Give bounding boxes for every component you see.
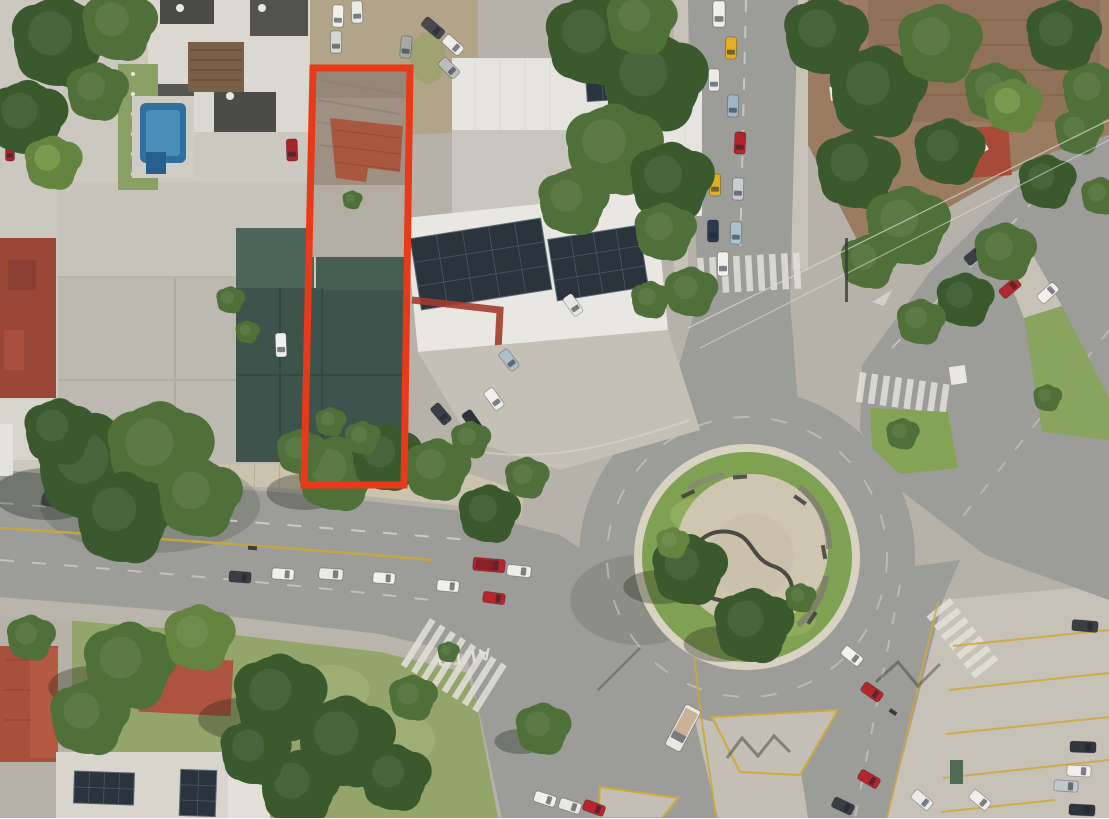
motorcycle: [248, 546, 257, 551]
car: [1069, 804, 1096, 816]
tree-highlight: [172, 471, 210, 509]
tree-highlight: [618, 0, 650, 32]
van-windshield: [715, 16, 724, 22]
pickup-truck-body: [319, 568, 344, 581]
tree-highlight: [176, 616, 208, 648]
tree-highlight: [77, 72, 105, 100]
car-windshield: [332, 44, 340, 49]
swimming-pool-inner: [146, 110, 180, 156]
car-windshield: [284, 570, 289, 578]
pickup-truck-windshield: [719, 266, 727, 271]
car: [286, 139, 298, 161]
car: [730, 222, 742, 244]
pickup-truck: [319, 568, 344, 581]
teal-court-lot: [316, 252, 408, 290]
tree-highlight: [562, 9, 606, 53]
car: [734, 132, 746, 155]
aerial-photo-svg: ALTO: [0, 0, 1109, 818]
tree-highlight: [15, 623, 37, 645]
tree-highlight: [926, 130, 958, 162]
car-body: [286, 139, 298, 161]
taxi-body: [725, 37, 737, 59]
solar-array-house: [73, 771, 134, 805]
car-windshield: [334, 18, 342, 23]
car-body: [400, 36, 413, 59]
tree-highlight: [95, 2, 129, 36]
car-windshield: [7, 153, 13, 157]
car: [708, 220, 719, 242]
grass-patch: [410, 32, 446, 84]
pickup-truck: [718, 252, 729, 276]
car-windshield: [449, 582, 455, 590]
car: [1072, 619, 1099, 632]
car-body: [732, 178, 744, 200]
tree-highlight: [351, 427, 367, 443]
car-body: [1069, 804, 1096, 816]
tree-highlight: [320, 412, 334, 426]
car: [727, 95, 739, 117]
car-windshield: [710, 82, 718, 87]
car: [709, 69, 720, 91]
palm-tree-highlight: [994, 88, 1020, 114]
tree-highlight: [92, 487, 136, 531]
island-shrub-highlight: [790, 588, 804, 602]
roof-unit: [160, 0, 214, 24]
car-body: [1072, 619, 1099, 632]
tree-highlight: [638, 287, 656, 305]
trash-bin: [950, 760, 963, 784]
tree-highlight: [125, 418, 173, 466]
car-body: [730, 222, 742, 244]
car: [1054, 780, 1079, 793]
teal-court-upper: [236, 228, 314, 288]
car-body: [708, 220, 719, 242]
car: [732, 178, 744, 200]
van-body: [506, 564, 531, 577]
car-windshield: [1068, 782, 1074, 790]
car: [275, 333, 287, 357]
car: [400, 36, 413, 59]
tree-highlight: [1038, 389, 1051, 402]
tree-highlight: [458, 427, 476, 445]
car-windshield: [277, 347, 285, 353]
car-windshield: [1084, 806, 1090, 814]
tree-highlight: [232, 730, 264, 762]
tree-highlight: [2, 93, 38, 129]
tree-highlight: [99, 637, 141, 679]
tree-highlight: [397, 683, 419, 705]
car: [229, 571, 252, 584]
swimming-pool-square: [146, 152, 166, 174]
tree-highlight: [28, 11, 72, 55]
stepping-stone: [131, 72, 135, 76]
island-tree-highlight: [728, 601, 764, 637]
car: [1067, 765, 1092, 777]
tree-highlight: [912, 17, 950, 55]
tree-highlight: [905, 307, 927, 329]
car-body: [229, 571, 252, 584]
tree-highlight: [64, 693, 100, 729]
pickup-truck-windshield: [333, 570, 339, 578]
shrub-highlight: [221, 291, 234, 304]
car-body: [1070, 741, 1096, 753]
shrub-highlight: [441, 645, 451, 655]
van-windshield: [520, 567, 526, 576]
car-body: [275, 333, 287, 357]
tree-highlight: [946, 282, 972, 308]
tree-highlight: [798, 9, 836, 47]
car-windshield: [709, 233, 717, 238]
tree-highlight: [525, 712, 550, 737]
tree-highlight: [249, 669, 291, 711]
tree-highlight: [645, 212, 673, 240]
aerial-photo-figure: ALTO Aerial drone photo of a traffic rou…: [0, 0, 1109, 818]
car: [1070, 741, 1096, 753]
tree-highlight: [372, 756, 404, 788]
car: [351, 1, 363, 23]
pickup-truck-body: [718, 252, 729, 276]
car-body: [332, 5, 344, 27]
car: [272, 568, 295, 581]
roof-unit: [4, 330, 24, 370]
tree-highlight: [619, 48, 667, 96]
car-windshield: [288, 152, 296, 157]
tree-highlight: [846, 61, 890, 105]
car-windshield: [734, 191, 742, 196]
roof-unit: [8, 260, 36, 290]
roof-unit: [214, 92, 276, 132]
taxi: [725, 37, 737, 59]
tree-highlight: [1063, 117, 1085, 139]
car-windshield: [241, 573, 246, 581]
solar-array-house: [179, 769, 217, 816]
tree-highlight: [892, 424, 907, 439]
car: [437, 580, 460, 593]
car: [331, 31, 342, 53]
truck-red: [472, 557, 505, 573]
car-windshield: [736, 145, 744, 150]
palm-tree-highlight: [34, 145, 60, 171]
ac-unit: [226, 92, 234, 100]
tree-highlight: [512, 464, 532, 484]
tree-highlight: [469, 494, 497, 522]
tree-highlight: [850, 244, 876, 270]
car-body: [1067, 765, 1092, 777]
car-body: [734, 132, 746, 155]
car-windshield: [729, 108, 737, 113]
car-body: [727, 95, 739, 117]
tree-highlight: [416, 449, 446, 479]
car-body: [709, 69, 720, 91]
tree-highlight: [550, 180, 582, 212]
car-windshield: [385, 574, 390, 582]
tree-highlight: [1088, 183, 1106, 201]
tree-highlight: [880, 199, 918, 237]
tree-highlight: [314, 711, 358, 755]
car-windshield: [1085, 743, 1091, 751]
van: [713, 1, 725, 27]
car-windshield: [1087, 622, 1093, 630]
stepping-stone: [131, 92, 135, 96]
taxi-windshield: [711, 187, 719, 192]
car-body: [351, 1, 363, 23]
car-windshield: [401, 48, 409, 54]
tree-highlight: [36, 410, 68, 442]
car-body: [331, 31, 342, 53]
tree-highlight: [1039, 12, 1073, 46]
car-body: [373, 572, 396, 585]
tree-highlight: [582, 119, 626, 163]
traffic-light-pole: [845, 238, 848, 302]
ac-unit: [176, 4, 184, 12]
tree-highlight: [644, 155, 682, 193]
van-body: [713, 1, 725, 27]
tree-highlight: [985, 232, 1013, 260]
car-body: [1054, 780, 1079, 793]
truck-red-cargo: [475, 559, 493, 570]
car-body: [272, 568, 295, 581]
taxi-windshield: [727, 50, 735, 55]
island-shrub-highlight: [662, 533, 677, 548]
shrub-highlight: [240, 324, 251, 335]
van: [506, 564, 531, 577]
car-windshield: [1081, 767, 1087, 775]
car-body: [437, 580, 460, 593]
car: [373, 572, 396, 585]
truck-trailer: [0, 424, 13, 476]
car-windshield: [732, 235, 740, 240]
ac-unit: [258, 4, 266, 12]
roof-unit: [250, 0, 308, 36]
car: [332, 5, 344, 27]
tree-highlight: [830, 143, 868, 181]
tree-highlight: [1028, 164, 1054, 190]
tree-highlight: [1073, 72, 1101, 100]
road-sign: [949, 365, 967, 385]
shrub-highlight: [346, 194, 355, 203]
car-windshield: [353, 14, 361, 19]
tree-highlight: [674, 275, 698, 299]
